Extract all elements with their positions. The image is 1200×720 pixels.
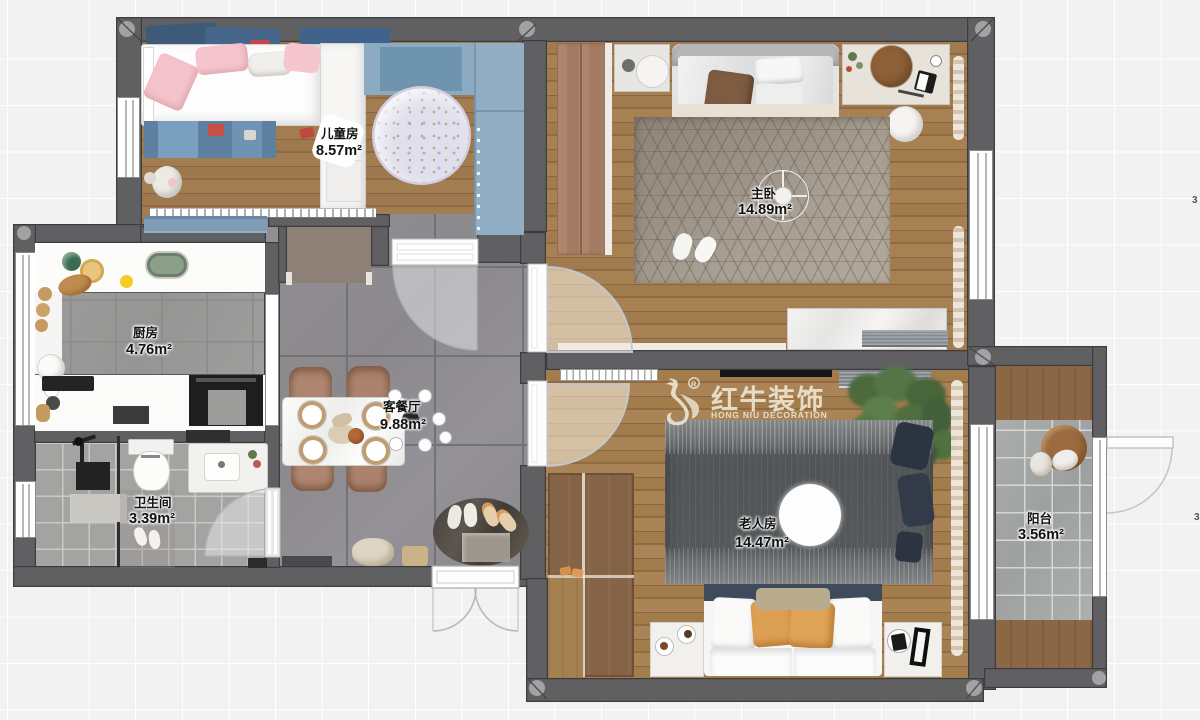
svg-text:R: R: [691, 380, 697, 389]
svg-text:HONG NIU DECORATION: HONG NIU DECORATION: [711, 410, 828, 420]
